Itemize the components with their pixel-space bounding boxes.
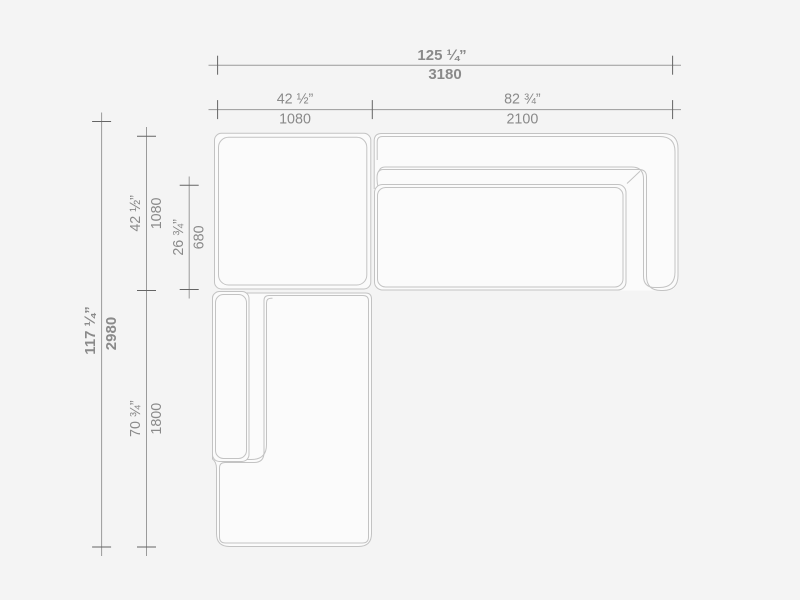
svg-text:70 ¾”: 70 ¾” <box>128 400 144 437</box>
svg-text:125 ¼”: 125 ¼” <box>417 47 466 64</box>
svg-text:680: 680 <box>192 225 208 249</box>
svg-text:42 ½”: 42 ½” <box>128 195 144 232</box>
svg-text:3180: 3180 <box>428 66 461 83</box>
svg-text:26 ¾”: 26 ¾” <box>171 219 187 256</box>
svg-text:2100: 2100 <box>506 112 538 128</box>
svg-text:1800: 1800 <box>149 403 165 435</box>
svg-text:1080: 1080 <box>279 112 311 128</box>
svg-text:1080: 1080 <box>149 197 165 229</box>
svg-text:82 ¾”: 82 ¾” <box>504 91 541 107</box>
svg-text:2980: 2980 <box>103 317 120 350</box>
svg-text:42 ½”: 42 ½” <box>277 91 314 107</box>
svg-text:117 ¼”: 117 ¼” <box>82 306 99 354</box>
